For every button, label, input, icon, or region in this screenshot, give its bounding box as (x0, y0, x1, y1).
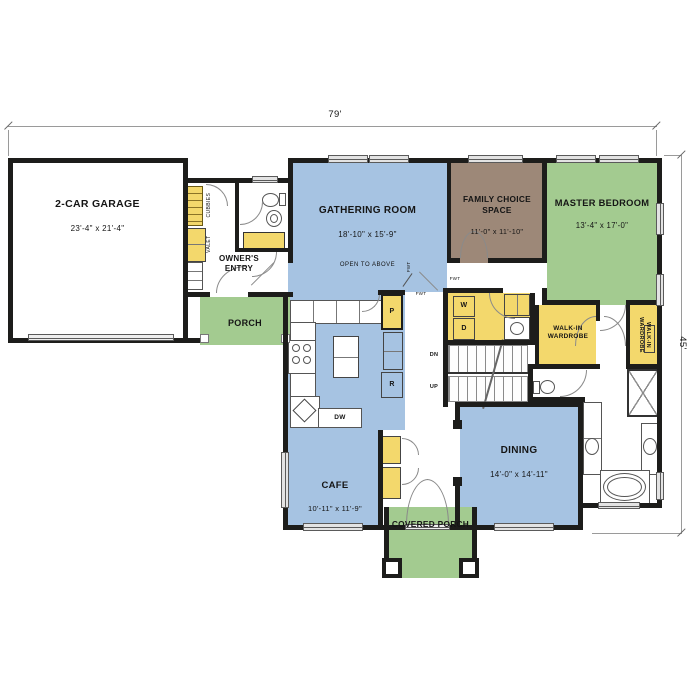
stair-stringer (448, 372, 528, 374)
vanity-sink-left (585, 438, 599, 455)
dim-ext (592, 533, 682, 534)
room-label-family-choice: FAMILY CHOICE SPACE 11'-0" x 11'-10" (450, 184, 544, 247)
door-arc (604, 316, 626, 346)
room-label-cafe: CAFE 10'-11" x 11'-9" (290, 468, 380, 525)
fwt-label-vertical: FWT (406, 258, 412, 276)
island-divider (334, 357, 358, 358)
door-arc (402, 438, 419, 455)
wall (443, 345, 448, 407)
foyer-closet (382, 467, 401, 499)
powder-toilet-bowl (262, 193, 279, 207)
wall (8, 158, 188, 163)
master-size: 13'-4" x 17'-0" (548, 221, 656, 231)
door-arc (560, 370, 587, 397)
window (328, 155, 368, 163)
dishwasher-label: DW (334, 414, 345, 422)
dim-ext (656, 130, 657, 156)
refrigerator-label: R (389, 381, 394, 390)
window (656, 472, 664, 500)
porch-post-small (200, 334, 209, 343)
wall (235, 183, 239, 250)
cabinet-divider (384, 351, 402, 352)
powder-sink-basin (270, 214, 278, 223)
wall (183, 163, 188, 343)
garage-door (28, 334, 174, 341)
fwt-label: FWT (446, 276, 464, 282)
vanity-sink-right (643, 438, 657, 455)
stove-burner (292, 356, 300, 364)
stove-burner (303, 344, 311, 352)
powder-toilet-tank (279, 193, 286, 206)
room-label-covered-porch: COVERED PORCH (389, 519, 472, 529)
foyer-closet (382, 436, 401, 464)
dryer: D (453, 318, 475, 340)
room-label-gathering: GATHERING ROOM 18'-10" x 15'-9" OPEN TO … (295, 192, 440, 282)
gathering-size: 18'-10" x 15'-9" (295, 230, 440, 240)
wall (443, 288, 503, 293)
wc-toilet-tank (533, 381, 540, 394)
wall (535, 364, 600, 369)
gathering-note: OPEN TO ABOVE (295, 262, 440, 270)
cafe-name: CAFE (290, 480, 380, 492)
gathering-name: GATHERING ROOM (295, 205, 440, 218)
wall (235, 248, 293, 252)
stove-burner (292, 344, 300, 352)
wall (8, 158, 13, 343)
dryer-label: D (461, 325, 466, 334)
window (468, 155, 523, 163)
dim-label-depth: 45' (676, 333, 688, 353)
stairs-up-label: UP (426, 384, 442, 391)
dim-ext (8, 130, 9, 156)
window (494, 523, 554, 531)
wall (535, 305, 539, 369)
stove-burner (303, 356, 311, 364)
wc-toilet-bowl (540, 380, 555, 394)
pantry-label: P (390, 308, 395, 317)
wall (447, 258, 460, 263)
window (556, 155, 596, 163)
room-label-wic2: WALK-IN WARDROBE (637, 305, 651, 365)
laundry-cab-divider (517, 295, 518, 315)
wall (248, 292, 293, 297)
wall (626, 305, 630, 368)
pantry-cabinet: P (381, 294, 403, 330)
wall (596, 305, 600, 321)
window (656, 203, 664, 235)
fwt-label: FWT (412, 291, 430, 297)
room-label-wic1: WALK-IN WARDROBE (541, 325, 595, 341)
window (598, 502, 640, 509)
shower (627, 369, 659, 417)
wall (443, 340, 535, 345)
window (281, 452, 289, 508)
door-arc (240, 202, 263, 225)
wall (488, 258, 547, 263)
dishwasher: DW (318, 408, 362, 428)
porch-post (382, 558, 402, 578)
room-label-garage: 2-CAR GARAGE 23'-4" x 21'-4" (30, 185, 165, 248)
floor-plan: 79' 45' (0, 0, 700, 700)
wall (443, 288, 448, 345)
wall (453, 477, 462, 486)
master-name: MASTER BEDROOM (548, 198, 656, 210)
dining-size: 14'-0" x 14'-11" (462, 470, 576, 480)
stairs-upper-flight (448, 345, 528, 373)
cafe-size: 10'-11" x 11'-9" (290, 504, 380, 513)
refrigerator: R (381, 372, 403, 398)
washer-label: W (461, 302, 468, 311)
bathtub-inner (607, 477, 642, 497)
garage-size: 23'-4" x 21'-4" (30, 224, 165, 234)
window (656, 274, 664, 306)
dim-label-width: 79' (300, 109, 370, 121)
wall (453, 420, 462, 429)
wall (542, 300, 600, 305)
cubbies-label: CUBBIES (206, 187, 212, 223)
family-choice-size: 11'-0" x 11'-10" (450, 227, 544, 236)
washer: W (453, 296, 475, 317)
stairs-dn-label: DN (426, 352, 442, 359)
room-label-owners-entry: OWNER'S ENTRY (203, 254, 275, 274)
room-label-master: MASTER BEDROOM 13'-4" x 17'-0" (548, 186, 656, 242)
wall (183, 292, 210, 297)
window (599, 155, 639, 163)
garage-name: 2-CAR GARAGE (30, 198, 165, 211)
porch-post (459, 558, 479, 578)
cubbies-shelving (187, 186, 203, 226)
wall (455, 402, 583, 407)
family-choice-name: FAMILY CHOICE SPACE (450, 194, 544, 215)
room-label-porch: PORCH (200, 318, 290, 329)
dining-name: DINING (462, 445, 576, 458)
window (369, 155, 409, 163)
door-arc (402, 468, 419, 485)
window (252, 176, 278, 183)
dim-line-top (8, 126, 657, 127)
wall (455, 402, 460, 422)
laundry-sink (510, 322, 524, 335)
valet-divider (188, 244, 205, 245)
wall (578, 400, 583, 530)
room-label-dining: DINING 14'-0" x 14'-11" (462, 432, 576, 492)
valet-label: VALET (206, 229, 212, 259)
wall (378, 290, 405, 295)
